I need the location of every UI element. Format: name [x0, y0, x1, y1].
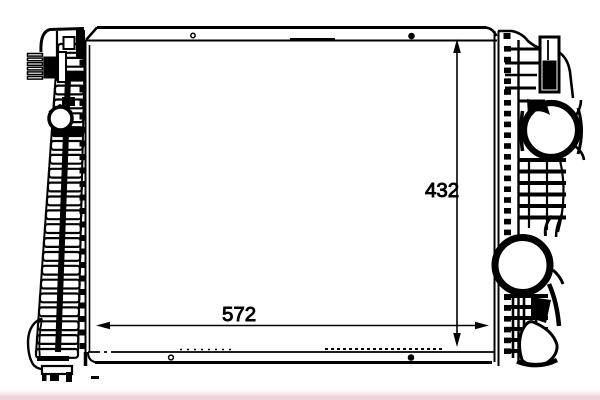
- svg-text:572: 572: [222, 303, 256, 326]
- svg-text:432: 432: [425, 179, 459, 202]
